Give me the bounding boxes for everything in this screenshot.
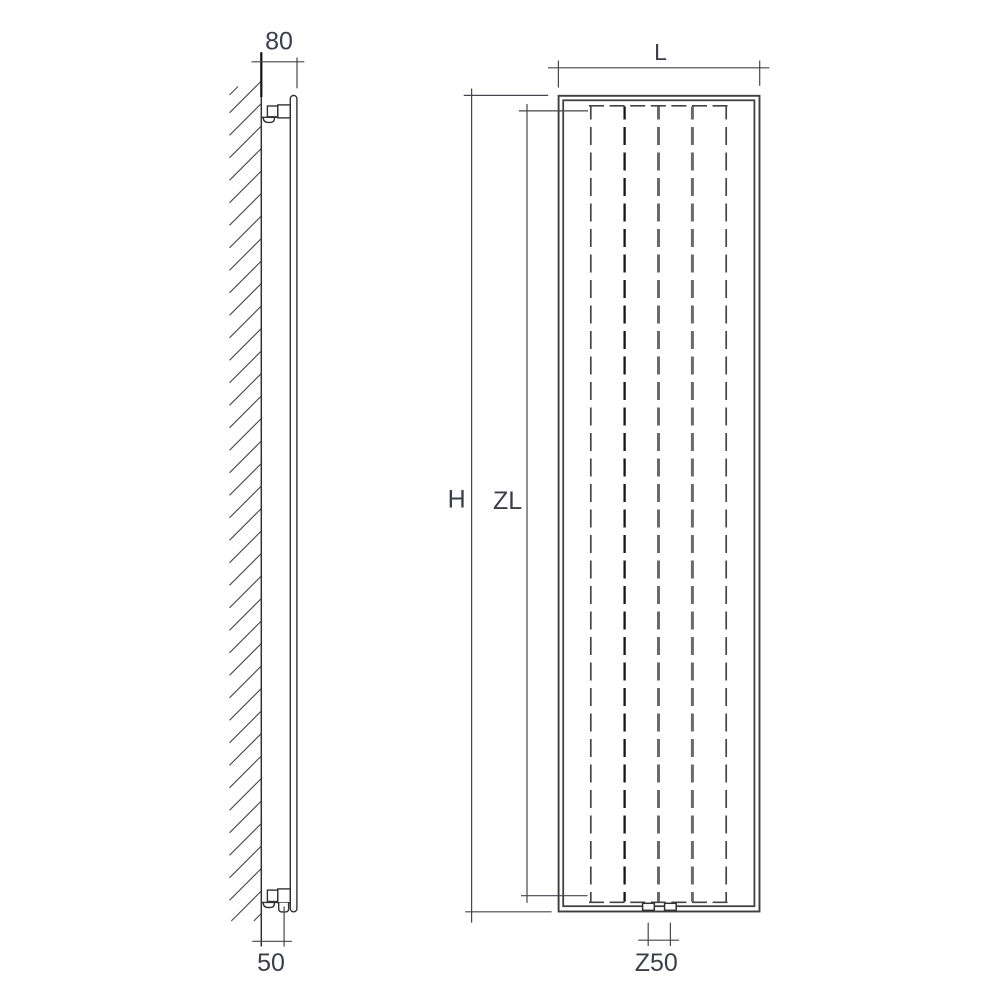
svg-text:Z50: Z50: [635, 949, 678, 977]
svg-text:H: H: [448, 486, 466, 514]
svg-text:ZL: ZL: [493, 487, 522, 515]
svg-text:50: 50: [257, 949, 285, 977]
svg-text:80: 80: [265, 27, 293, 55]
svg-text:L: L: [654, 39, 667, 65]
